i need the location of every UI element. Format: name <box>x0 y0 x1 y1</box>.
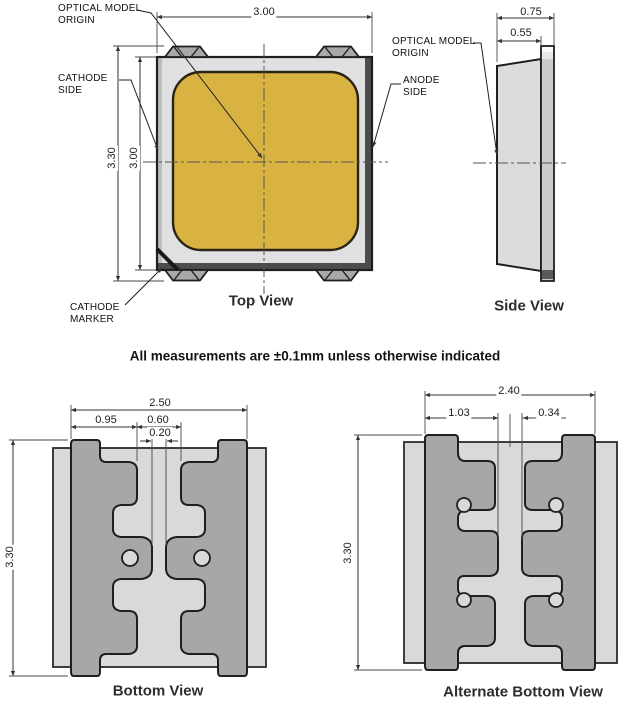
optical-model-origin-line2: ORIGIN <box>58 15 141 27</box>
alt-pad-notch-2 <box>457 593 471 607</box>
leader-side-optical-origin <box>473 43 497 155</box>
dim-alt-height: 3.30 <box>342 540 354 565</box>
anode-side-line1: ANODE <box>403 75 440 87</box>
side-substrate-foot <box>541 270 554 279</box>
dim-bottom-span: 2.50 <box>149 397 170 409</box>
side-substrate-cap2 <box>541 52 554 59</box>
dim-top-height-total: 3.30 <box>106 145 118 170</box>
alt-bottom-view-drawing <box>404 435 617 670</box>
side-body <box>497 59 541 271</box>
mechanical-drawing-page: OPTICAL MODEL ORIGIN CATHODE SIDE ANODE … <box>0 0 622 702</box>
bottom-pad-notch-right <box>194 550 210 566</box>
top-tab-right <box>316 47 359 58</box>
optical-model-origin-line1: OPTICAL MODEL <box>58 3 141 15</box>
dim-bottom-center-gap: 0.20 <box>147 427 172 439</box>
dim-side-body: 0.55 <box>510 27 531 39</box>
dim-alt-gap: 0.34 <box>536 407 561 419</box>
side-optical-model-origin-label: OPTICAL MODEL ORIGIN <box>392 36 475 59</box>
cathode-side-line2: SIDE <box>58 85 108 97</box>
dim-alt-span: 2.40 <box>496 385 521 397</box>
alt-pad-notch-1 <box>457 498 471 512</box>
leader-anode-side <box>373 84 401 147</box>
side-optical-origin-line2: ORIGIN <box>392 48 475 60</box>
tolerance-note: All measurements are ±0.1mm unless other… <box>130 349 501 364</box>
top-tab-left <box>165 47 208 58</box>
optical-model-origin-label: OPTICAL MODEL ORIGIN <box>58 3 141 26</box>
cathode-side-line1: CATHODE <box>58 73 108 85</box>
side-view-title: Side View <box>494 298 564 315</box>
dim-bottom-height: 3.30 <box>4 544 16 569</box>
cathode-side-label: CATHODE SIDE <box>58 73 108 96</box>
dim-bottom-pad: 0.95 <box>95 414 116 426</box>
cathode-marker-label: CATHODE MARKER <box>70 302 120 325</box>
leader-cathode-side <box>119 80 158 150</box>
bottom-view-title: Bottom View <box>113 683 204 700</box>
top-view-drawing <box>143 44 388 294</box>
alt-pad-right <box>522 435 595 670</box>
phosphor-emitter <box>173 72 358 250</box>
bottom-tab-right <box>316 270 359 281</box>
cathode-marker-line1: CATHODE <box>70 302 120 314</box>
top-view-title: Top View <box>229 293 293 310</box>
bottom-pad-notch-left <box>122 550 138 566</box>
bottom-tab-left <box>165 270 208 281</box>
bottom-view-drawing <box>53 440 266 676</box>
dim-side-total: 0.75 <box>520 6 541 18</box>
alt-pad-notch-3 <box>549 498 563 512</box>
dim-alt-pad: 1.03 <box>446 407 471 419</box>
alt-bottom-view-title: Alternate Bottom View <box>443 684 603 701</box>
side-optical-origin-line1: OPTICAL MODEL <box>392 36 475 48</box>
dim-top-height-body: 3.00 <box>128 145 140 170</box>
alt-pad-notch-4 <box>549 593 563 607</box>
anode-side-line2: SIDE <box>403 87 440 99</box>
dim-bottom-top-gap: 0.60 <box>147 414 168 426</box>
dim-top-width: 3.00 <box>251 6 276 18</box>
alt-pad-left <box>425 435 498 670</box>
leader-cathode-marker <box>125 268 162 305</box>
anode-side-label: ANODE SIDE <box>403 75 440 98</box>
cathode-marker-line2: MARKER <box>70 314 120 326</box>
